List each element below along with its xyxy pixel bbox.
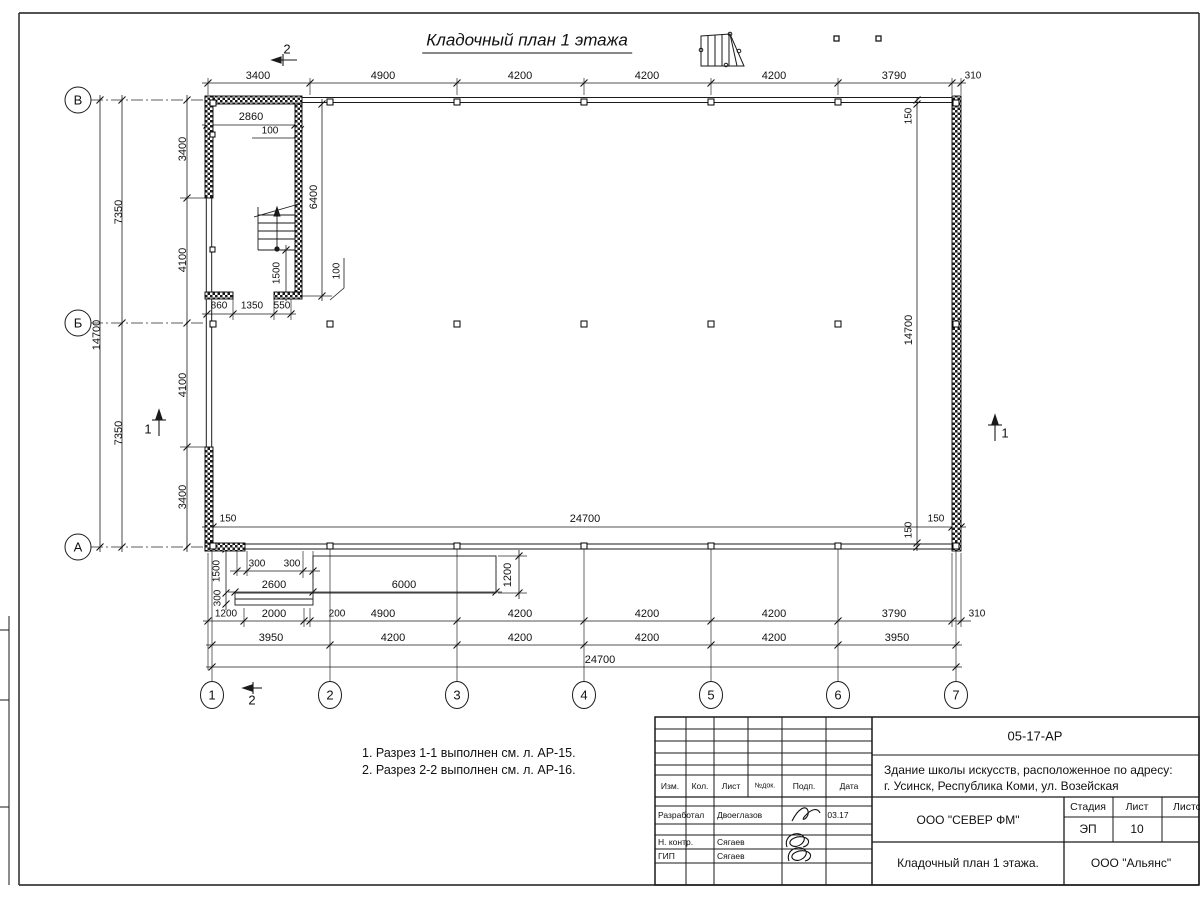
title-block-grid [655,717,1199,885]
sheet-frame [0,13,1199,885]
dimension-ticks [97,80,965,671]
plan-drawing [0,0,1200,900]
drawing-sheet: Кладочный план 1 этажа 1. Разрез 1-1 вып… [0,0,1200,900]
stairs [254,204,299,251]
axis-centerlines [91,100,205,547]
section-marks [152,54,1002,694]
marker-squares [834,36,881,41]
plan-key-icon [699,32,744,67]
signatures [786,808,820,861]
axis-circles [65,87,968,709]
dimension-lines [100,83,971,667]
grid-lines [212,548,956,682]
